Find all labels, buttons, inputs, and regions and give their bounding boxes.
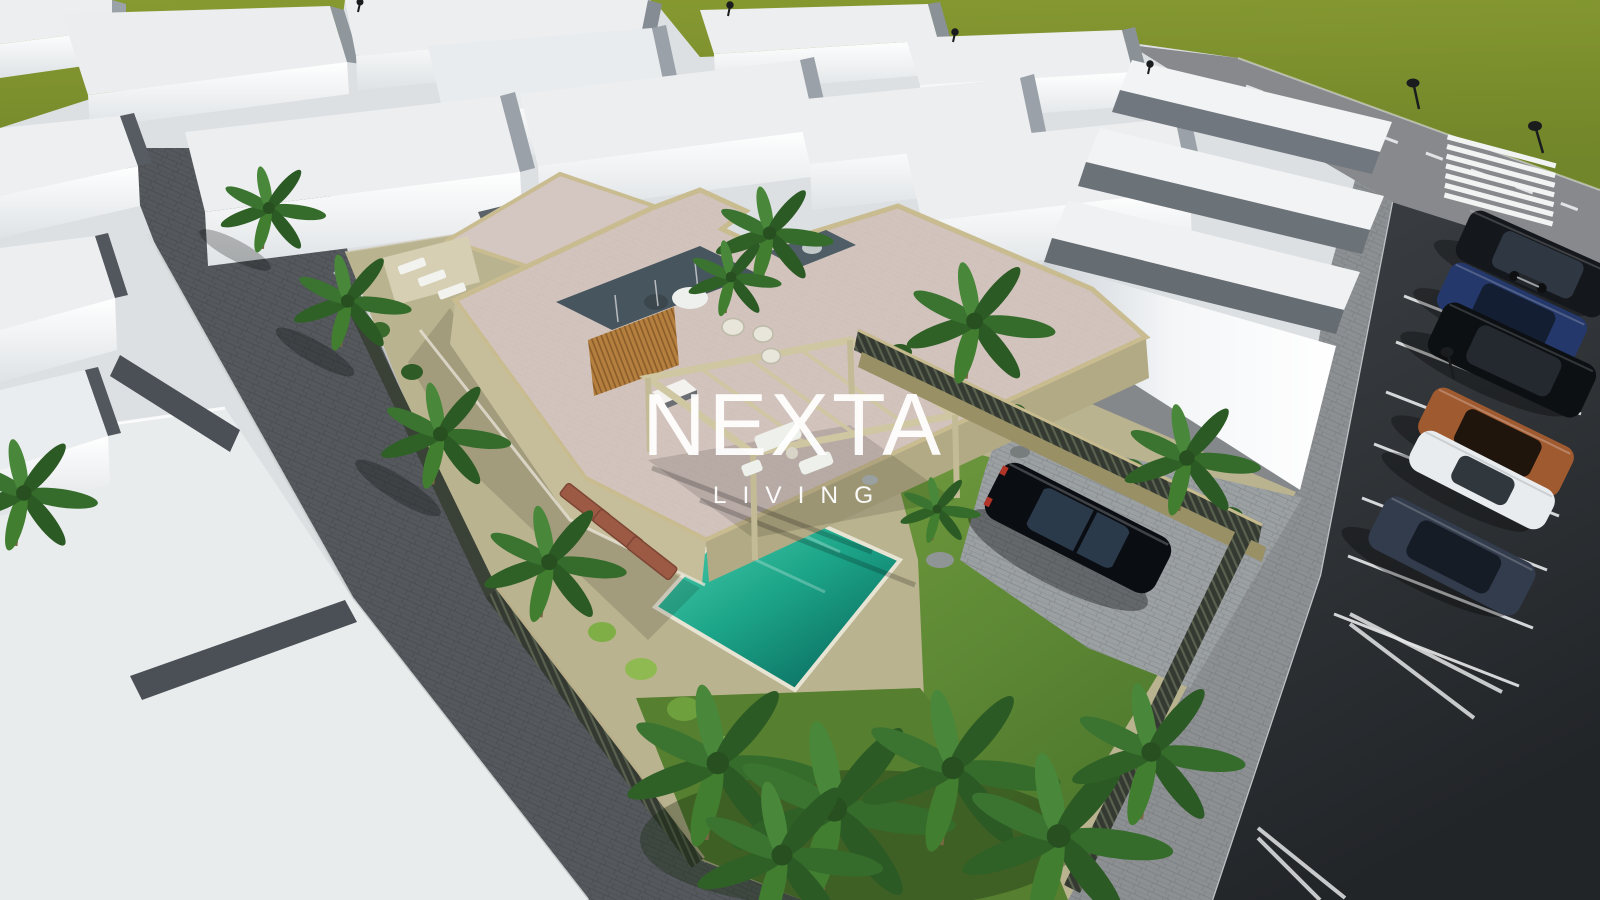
rendering-canvas: NEXTA LIVING bbox=[0, 0, 1600, 900]
aerial-render: NEXTA LIVING bbox=[0, 0, 1600, 900]
brand-wordmark: NEXTA bbox=[642, 375, 944, 474]
brand-tagline: LIVING bbox=[713, 482, 889, 509]
